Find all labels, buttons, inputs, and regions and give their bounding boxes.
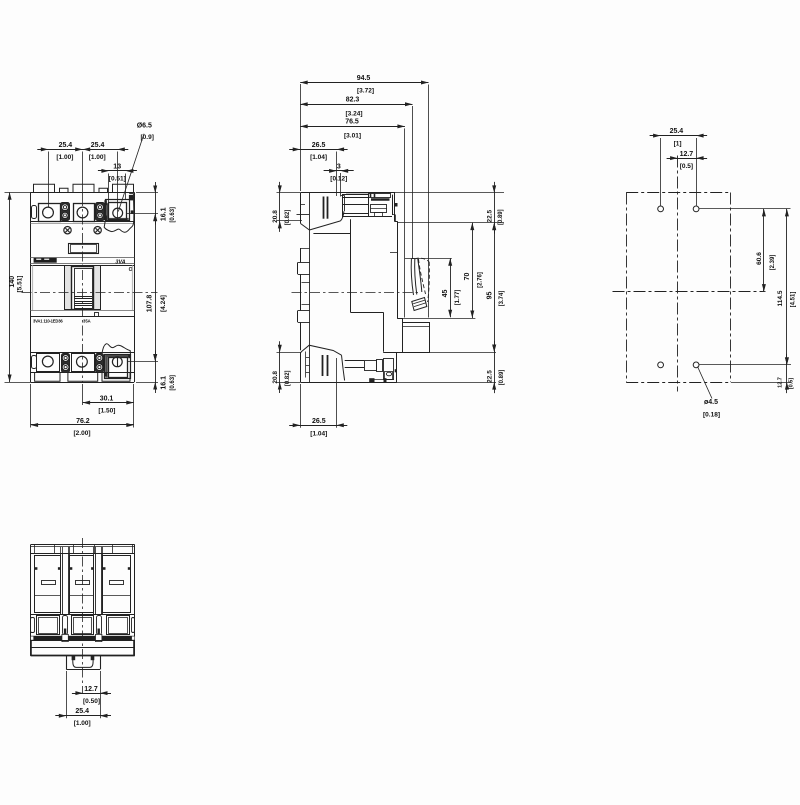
svg-text:25.4: 25.4 (670, 128, 684, 135)
svg-text:[3.24]: [3.24] (346, 110, 363, 117)
svg-text:20.8: 20.8 (272, 210, 279, 223)
svg-text:[0.82]: [0.82] (285, 210, 291, 226)
svg-text:16.1: 16.1 (160, 207, 167, 221)
svg-text:76.2: 76.2 (76, 418, 90, 425)
svg-text:12.7: 12.7 (680, 151, 694, 158)
svg-text:[5.51]: [5.51] (16, 276, 23, 293)
svg-text:[0.5]: [0.5] (680, 163, 693, 170)
svg-text:[0.82]: [0.82] (285, 370, 291, 386)
svg-text:[0.50]: [0.50] (83, 698, 100, 705)
svg-text:25.4: 25.4 (59, 142, 73, 149)
svg-text:[4.51]: [4.51] (791, 292, 797, 308)
svg-text:3: 3 (337, 163, 341, 170)
svg-text:[0.63]: [0.63] (170, 207, 176, 223)
svg-text:[2.76]: [2.76] (478, 272, 484, 288)
svg-text:[1.00]: [1.00] (74, 720, 91, 727)
svg-text:60.6: 60.6 (756, 252, 763, 265)
svg-text:45: 45 (442, 290, 449, 298)
svg-text:35A: 35A (83, 318, 91, 323)
svg-text:140: 140 (9, 276, 16, 288)
svg-text:ø4.5: ø4.5 (704, 399, 718, 406)
svg-text:[2.39]: [2.39] (770, 255, 776, 271)
svg-text:[0.89]: [0.89] (498, 209, 504, 225)
svg-text:12.7: 12.7 (84, 686, 98, 693)
svg-text:3VA: 3VA (115, 259, 125, 265)
svg-text:[0.12]: [0.12] (330, 176, 347, 183)
svg-text:22.5: 22.5 (487, 209, 494, 222)
svg-text:26.5: 26.5 (312, 418, 326, 425)
svg-text:30.1: 30.1 (100, 395, 114, 402)
svg-text:25.4: 25.4 (91, 142, 105, 149)
svg-text:[1.00]: [1.00] (89, 154, 106, 161)
svg-text:107.8: 107.8 (147, 295, 154, 313)
svg-text:[0.18]: [0.18] (703, 411, 720, 418)
svg-text:[1.77]: [1.77] (455, 290, 461, 306)
svg-text:94.5: 94.5 (357, 75, 371, 82)
svg-text:25.4: 25.4 (75, 708, 89, 715)
svg-text:70: 70 (464, 273, 471, 281)
svg-text:114.5: 114.5 (777, 290, 784, 306)
svg-text:16.1: 16.1 (160, 376, 167, 390)
svg-text:[3.01]: [3.01] (344, 132, 361, 139)
svg-text:[3.74]: [3.74] (499, 291, 505, 307)
svg-text:[0.89]: [0.89] (499, 370, 505, 386)
svg-text:[1.00]: [1.00] (56, 154, 73, 161)
svg-text:[0.51]: [0.51] (109, 176, 126, 183)
svg-text:22.5: 22.5 (487, 370, 494, 383)
svg-text:82.3: 82.3 (346, 97, 360, 104)
svg-text:[3.72]: [3.72] (357, 88, 374, 95)
svg-text:3VA1 110-1ED36: 3VA1 110-1ED36 (33, 318, 63, 323)
svg-text:Ø6.5: Ø6.5 (137, 123, 152, 130)
svg-text:95: 95 (487, 292, 494, 300)
svg-text:[0.63]: [0.63] (170, 375, 176, 391)
svg-text:[4.24]: [4.24] (160, 295, 167, 312)
svg-text:[1.50]: [1.50] (98, 408, 115, 415)
svg-text:26.5: 26.5 (312, 142, 326, 149)
svg-text:[0.5]: [0.5] (789, 378, 795, 389)
svg-text:76.5: 76.5 (345, 119, 359, 126)
svg-text:12.7: 12.7 (778, 377, 784, 388)
svg-text:[1]: [1] (674, 141, 682, 148)
svg-text:[2.00]: [2.00] (74, 430, 91, 437)
svg-text:20.8: 20.8 (272, 371, 279, 384)
svg-text:13: 13 (113, 164, 121, 171)
svg-text:[1.04]: [1.04] (310, 154, 327, 161)
svg-text:[1.04]: [1.04] (310, 430, 327, 437)
